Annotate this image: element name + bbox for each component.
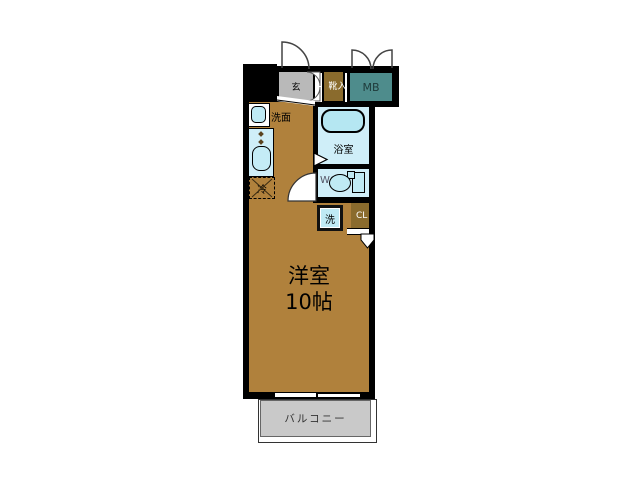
wall-right (369, 102, 375, 399)
balcony-window-sash-tick (316, 393, 318, 397)
meter-box-area: MB (347, 70, 395, 104)
bathroom-label: 浴室 (318, 138, 369, 157)
toilet-bowl-icon (329, 174, 351, 192)
closet-door-track (347, 228, 369, 235)
washstand-sink-icon (251, 106, 266, 123)
main-room-label: 洋室 10帖 (249, 263, 369, 315)
refrigerator-label: 冷 (257, 181, 267, 196)
meter-box-label: MB (362, 81, 379, 94)
washer-area: 洗 (317, 205, 343, 231)
closet-area: CL (351, 203, 369, 229)
kitchen-sink-icon (252, 146, 271, 171)
floor-plan: 玄 靴入 MB 洋室 10帖 CL 浴室 WC 洗 洗面 (0, 0, 640, 480)
washer-label: 洗 (325, 211, 335, 226)
balcony-area: バルコニー (258, 399, 377, 443)
bathtub-icon (321, 109, 365, 133)
closet-label: CL (356, 211, 364, 221)
main-room-size: 10帖 (249, 289, 369, 315)
entrance-area: 玄 (277, 70, 315, 103)
balcony-floor: バルコニー (260, 400, 371, 437)
refrigerator-area: 冷 (249, 177, 275, 199)
main-room-name: 洋室 (249, 263, 369, 289)
entrance-label: 玄 (291, 80, 300, 93)
balcony-label: バルコニー (284, 411, 346, 426)
balcony-window-sash (316, 393, 360, 395)
entrance-door-arc (282, 42, 309, 69)
shoe-cabinet-area: 靴入 (322, 70, 345, 103)
washstand-label: 洗面 (271, 106, 291, 125)
shoe-cabinet-label: 靴入 (329, 82, 339, 92)
